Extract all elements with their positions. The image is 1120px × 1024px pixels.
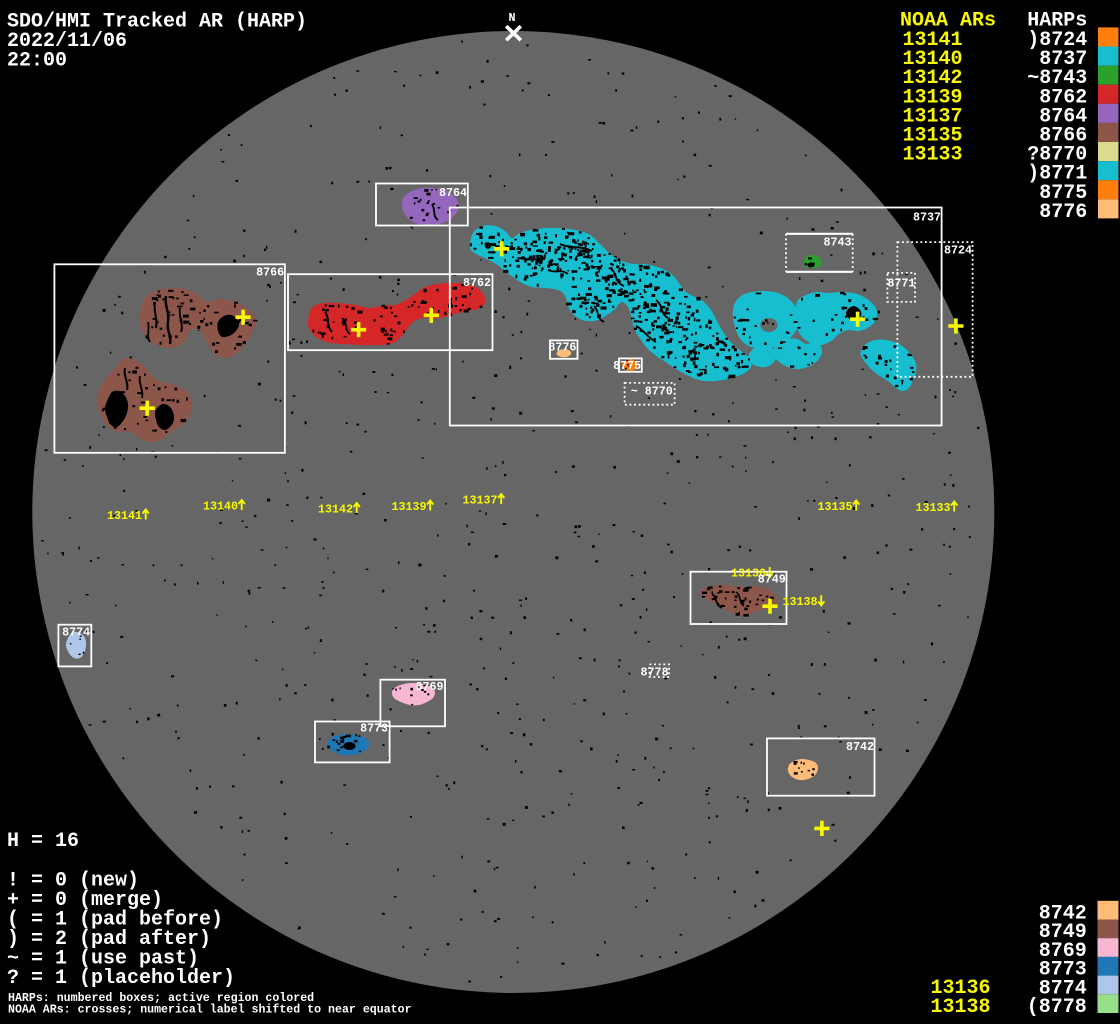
svg-text:~ 8770: ~ 8770: [631, 385, 673, 399]
svg-text:8764: 8764: [439, 186, 467, 200]
svg-text:8776: 8776: [548, 341, 576, 355]
svg-text:13133: 13133: [916, 501, 951, 515]
svg-text:8766: 8766: [256, 265, 284, 279]
svg-text:13138: 13138: [930, 996, 990, 1019]
svg-text:22:00: 22:00: [7, 50, 67, 73]
svg-text:8769: 8769: [415, 680, 443, 694]
svg-text:13137: 13137: [463, 494, 498, 508]
svg-text:13141: 13141: [107, 509, 142, 523]
svg-text:13139: 13139: [392, 500, 427, 514]
svg-text:? = 1 (placeholder): ? = 1 (placeholder): [7, 967, 235, 990]
svg-text:8737: 8737: [913, 211, 941, 225]
svg-text:13142: 13142: [318, 503, 353, 517]
svg-text:8762: 8762: [463, 276, 491, 290]
svg-text:8778: 8778: [641, 666, 669, 680]
svg-text:8742: 8742: [846, 740, 874, 754]
svg-text:8724: 8724: [944, 244, 972, 258]
svg-text:(8778: (8778: [1027, 996, 1087, 1019]
svg-text:H = 16: H = 16: [7, 830, 79, 853]
svg-text:N: N: [509, 11, 516, 25]
svg-text:13140: 13140: [203, 500, 238, 514]
svg-text:13138: 13138: [783, 595, 818, 609]
svg-text:8775: 8775: [613, 359, 641, 373]
svg-text:13135: 13135: [818, 500, 853, 514]
svg-text:8743: 8743: [823, 236, 851, 250]
svg-text:8773: 8773: [360, 721, 388, 735]
svg-text:NOAA ARs: crosses; numerical l: NOAA ARs: crosses; numerical label shift…: [8, 1003, 412, 1016]
svg-text:8749: 8749: [758, 573, 786, 587]
svg-text:8774: 8774: [62, 625, 90, 639]
svg-text:8776: 8776: [1039, 201, 1087, 224]
svg-text:8771: 8771: [887, 276, 915, 290]
svg-text:13133: 13133: [903, 144, 963, 167]
